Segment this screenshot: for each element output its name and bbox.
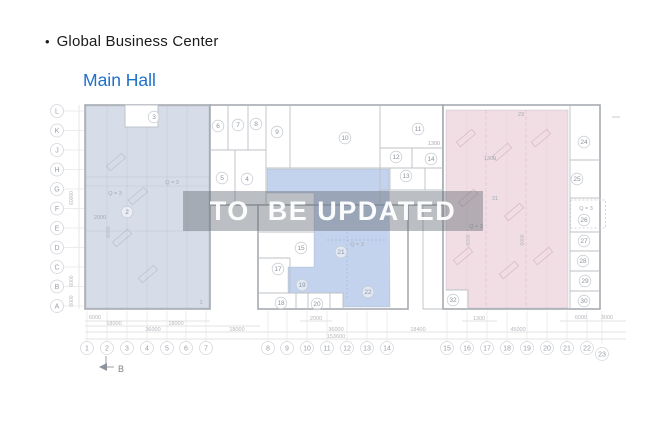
grid-column-label-10: 10 (301, 342, 314, 355)
grid-column-label-20: 20 (541, 342, 554, 355)
grid-column-label-19: 19 (521, 342, 534, 355)
room-label-29: 29 (579, 275, 591, 287)
room-label-22: 22 (362, 286, 374, 298)
svg-text:G: G (54, 186, 59, 193)
svg-text:18000: 18000 (106, 321, 121, 327)
grid-column-label-14: 14 (381, 342, 394, 355)
svg-text:7: 7 (204, 345, 208, 352)
grid-column-label-22: 22 (581, 342, 594, 355)
svg-text:Q = 3: Q = 3 (579, 206, 593, 212)
grid-row-label-L: L (51, 105, 64, 118)
grid-row-label-K: K (51, 124, 64, 137)
watermark-text: TO BE UPDATED (210, 196, 457, 227)
grid-column-label-18: 18 (501, 342, 514, 355)
room-label-27: 27 (578, 235, 590, 247)
svg-text:11: 11 (415, 126, 422, 133)
svg-text:2000: 2000 (310, 316, 322, 322)
svg-text:B: B (55, 284, 60, 291)
svg-text:D: D (54, 245, 59, 252)
grid-column-label-1: 1 (81, 342, 94, 355)
svg-text:28: 28 (579, 258, 587, 265)
grid-column-label-21: 21 (561, 342, 574, 355)
grid-column-label-11: 11 (321, 342, 334, 355)
svg-text:26: 26 (580, 217, 588, 224)
svg-text:5: 5 (165, 345, 169, 352)
svg-text:32: 32 (449, 297, 457, 304)
room-label-14: 14 (425, 153, 437, 165)
svg-text:Q = 3: Q = 3 (165, 180, 179, 186)
svg-text:B: B (118, 364, 124, 374)
room-label-6: 6 (212, 120, 224, 132)
svg-text:19: 19 (523, 345, 531, 352)
grid-row-label-C: C (51, 261, 64, 274)
svg-text:6000: 6000 (69, 295, 75, 306)
room-label-3: 3 (148, 111, 160, 123)
svg-text:K: K (55, 128, 60, 135)
room-label-10: 10 (339, 132, 351, 144)
svg-text:36000: 36000 (328, 327, 343, 333)
svg-text:19: 19 (298, 282, 306, 289)
room-label-20: 20 (311, 298, 323, 310)
svg-text:13: 13 (363, 345, 371, 352)
svg-text:6000: 6000 (106, 226, 112, 237)
svg-text:10: 10 (341, 135, 349, 142)
svg-text:21: 21 (563, 345, 571, 352)
svg-text:18: 18 (277, 300, 285, 307)
svg-text:11: 11 (323, 345, 330, 352)
grid-column-label-4: 4 (141, 342, 154, 355)
grid-column-label-8: 8 (262, 342, 275, 355)
svg-text:22: 22 (364, 289, 372, 296)
svg-text:2000: 2000 (94, 215, 106, 221)
svg-text:23: 23 (518, 112, 524, 118)
svg-text:21: 21 (337, 249, 345, 256)
svg-text:9: 9 (275, 129, 279, 136)
svg-text:18400: 18400 (410, 327, 425, 333)
svg-text:12: 12 (343, 345, 351, 352)
room-label-18: 18 (275, 297, 287, 309)
svg-text:15: 15 (443, 345, 451, 352)
svg-text:36000: 36000 (145, 327, 160, 333)
room-label-4: 4 (241, 173, 253, 185)
svg-text:1300: 1300 (484, 156, 496, 162)
svg-text:20: 20 (313, 301, 321, 308)
svg-text:2: 2 (105, 345, 109, 352)
svg-text:25: 25 (573, 176, 581, 183)
floor-plan-page: • Global Business Center Main Hall LKJHG… (0, 0, 660, 440)
svg-text:27: 27 (580, 238, 588, 245)
svg-text:16: 16 (463, 345, 471, 352)
dimension-labels: 6000180001800036000180002000360001536001… (89, 315, 613, 340)
grid-column-label-13: 13 (361, 342, 374, 355)
room-label-2: 2 (121, 206, 133, 218)
svg-text:6000: 6000 (89, 315, 101, 321)
svg-text:3: 3 (125, 345, 129, 352)
svg-text:13: 13 (402, 173, 410, 180)
section-marker: B (99, 356, 124, 374)
room-label-32: 32 (447, 294, 459, 306)
room-label-11: 11 (412, 123, 424, 135)
svg-text:L: L (55, 108, 59, 115)
svg-text:1: 1 (199, 300, 202, 306)
room-label-12: 12 (390, 151, 402, 163)
svg-text:1300: 1300 (428, 141, 440, 147)
svg-text:E: E (55, 225, 60, 232)
room-label-28: 28 (577, 255, 589, 267)
svg-text:17: 17 (483, 345, 491, 352)
svg-text:7: 7 (236, 122, 240, 129)
watermark-band: TO BE UPDATED (183, 191, 483, 231)
grid-row-label-G: G (51, 183, 64, 196)
grid-row-label-J: J (51, 144, 64, 157)
svg-text:17: 17 (274, 266, 282, 273)
svg-text:14: 14 (427, 156, 435, 163)
grid-column-label-3: 3 (121, 342, 134, 355)
svg-text:6000: 6000 (520, 234, 526, 245)
grid-column-label-6: 6 (180, 342, 193, 355)
svg-text:F: F (55, 206, 59, 213)
room-label-25: 25 (571, 173, 583, 185)
grid-column-label-5: 5 (161, 342, 174, 355)
room-label-17: 17 (272, 263, 284, 275)
grid-column-label-2: 2 (101, 342, 114, 355)
grid-row-label-B: B (51, 280, 64, 293)
svg-text:J: J (55, 147, 59, 154)
grid-column-label-17: 17 (481, 342, 494, 355)
svg-text:45000: 45000 (510, 327, 525, 333)
room-label-26: 26 (578, 214, 590, 226)
svg-text:18000: 18000 (168, 321, 183, 327)
svg-text:8: 8 (254, 121, 258, 128)
room-label-24: 24 (578, 136, 590, 148)
grid-column-label-15: 15 (441, 342, 454, 355)
svg-text:2: 2 (125, 209, 129, 216)
svg-text:31: 31 (492, 196, 498, 202)
room-label-5: 5 (216, 172, 228, 184)
svg-text:15: 15 (297, 245, 305, 252)
svg-text:14: 14 (383, 345, 391, 352)
svg-text:1: 1 (85, 345, 89, 352)
svg-text:6: 6 (184, 345, 188, 352)
svg-text:153600: 153600 (327, 334, 345, 340)
svg-text:A: A (55, 303, 60, 310)
svg-text:6: 6 (216, 123, 220, 130)
grid-row-label-E: E (51, 222, 64, 235)
grid-column-label-9: 9 (281, 342, 294, 355)
svg-text:5: 5 (220, 175, 224, 182)
grid-column-label-12: 12 (341, 342, 354, 355)
grid-row-label-D: D (51, 241, 64, 254)
grid-column-label-7: 7 (200, 342, 213, 355)
svg-text:4: 4 (145, 345, 149, 352)
grid-row-label-H: H (51, 163, 64, 176)
svg-text:1300: 1300 (473, 316, 485, 322)
svg-text:3: 3 (152, 114, 156, 121)
room-label-19: 19 (296, 279, 308, 291)
svg-text:30: 30 (580, 298, 588, 305)
room-label-9: 9 (271, 126, 283, 138)
svg-text:Q = 3: Q = 3 (108, 191, 122, 197)
svg-text:9: 9 (285, 345, 289, 352)
room-label-15: 15 (295, 242, 307, 254)
room-label-30: 30 (578, 295, 590, 307)
svg-text:4: 4 (245, 176, 249, 183)
svg-text:29: 29 (581, 278, 589, 285)
room-label-13: 13 (400, 170, 412, 182)
svg-text:18: 18 (503, 345, 511, 352)
svg-text:23: 23 (598, 351, 606, 358)
svg-text:18000: 18000 (229, 327, 244, 333)
svg-text:22: 22 (583, 345, 591, 352)
grid-row-label-F: F (51, 202, 64, 215)
room-label-7: 7 (232, 119, 244, 131)
svg-text:10: 10 (303, 345, 311, 352)
svg-text:6000: 6000 (466, 234, 472, 245)
grid-column-label-23: 23 (596, 348, 609, 361)
svg-text:6000: 6000 (575, 315, 587, 321)
room-label-21: 21 (335, 246, 347, 258)
svg-text:8: 8 (266, 345, 270, 352)
room-label-8: 8 (250, 118, 262, 130)
svg-text:60000: 60000 (69, 191, 75, 205)
svg-text:20: 20 (543, 345, 551, 352)
svg-text:3000: 3000 (601, 315, 613, 321)
svg-text:Q = 3: Q = 3 (350, 242, 364, 248)
svg-text:12: 12 (392, 154, 400, 161)
svg-text:24: 24 (580, 139, 588, 146)
grid-column-label-16: 16 (461, 342, 474, 355)
grid-row-label-A: A (51, 300, 64, 313)
svg-text:H: H (54, 167, 59, 174)
grid-column-labels: 1234567891011121314151617181920212223 (81, 342, 609, 361)
svg-text:C: C (54, 264, 59, 271)
svg-text:6000: 6000 (69, 275, 75, 286)
